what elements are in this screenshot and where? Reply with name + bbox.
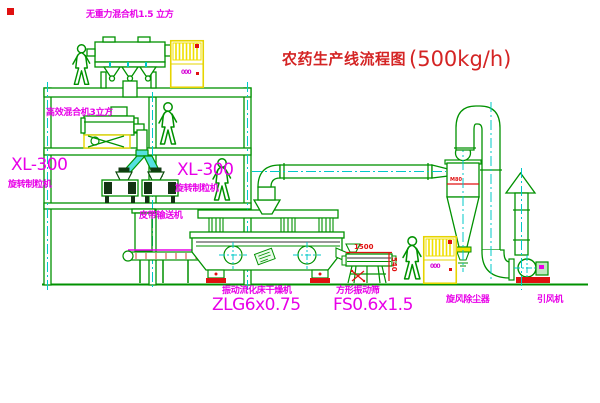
red-mark: [7, 8, 14, 15]
cyclone-annotation: M80: [450, 178, 462, 183]
person-figure: [159, 103, 177, 144]
dimension-sieve-length: 1500: [354, 244, 373, 251]
label-fan-name: 引风机: [537, 296, 563, 305]
mixer-drive-base: [84, 135, 130, 148]
cabinet1-panel-text: 000: [181, 70, 191, 76]
label-granulator-left-model: XL-300: [11, 157, 67, 174]
process-flow-diagram: 农药生产线流程图(500kg/h) 无重力混合机1.5 立方 高效混合机3立方 …: [0, 0, 600, 403]
label-sieve-model: FS0.6x1.5: [333, 297, 413, 314]
label-granulator-left-name: 旋转制粒机: [8, 181, 52, 190]
label-granulator-center-name: 旋转制粒机: [175, 185, 219, 194]
granulator-left: [102, 168, 138, 203]
granulator-right: [142, 168, 178, 203]
exhaust-duct: [254, 163, 448, 214]
cabinet2-panel-text: 000: [430, 264, 440, 270]
label-high-efficiency-mixer: 高效混合机3立方: [46, 109, 113, 118]
exhaust-stack: [506, 173, 535, 255]
fluid-bed-dryer: [190, 210, 350, 283]
dimension-sieve-height: 540: [390, 257, 397, 272]
label-granulator-center-model: XL-300: [177, 162, 233, 179]
label-dryer-model: ZLG6x0.75: [212, 297, 301, 314]
diagram-title: 农药生产线流程图(500kg/h): [282, 47, 511, 71]
title-chinese: 农药生产线流程图: [282, 50, 406, 68]
control-cabinet-1: [171, 41, 204, 88]
title-capacity: (500kg/h): [409, 47, 511, 71]
induced-draft-fan: [509, 255, 550, 283]
label-belt-conveyor: 皮带输送机: [139, 212, 183, 221]
person-figure: [403, 237, 421, 279]
control-cabinet-2: [424, 237, 457, 284]
label-gravity-free-mixer: 无重力混合机1.5 立方: [86, 11, 173, 20]
label-cyclone-name: 旋风除尘器: [446, 296, 490, 305]
